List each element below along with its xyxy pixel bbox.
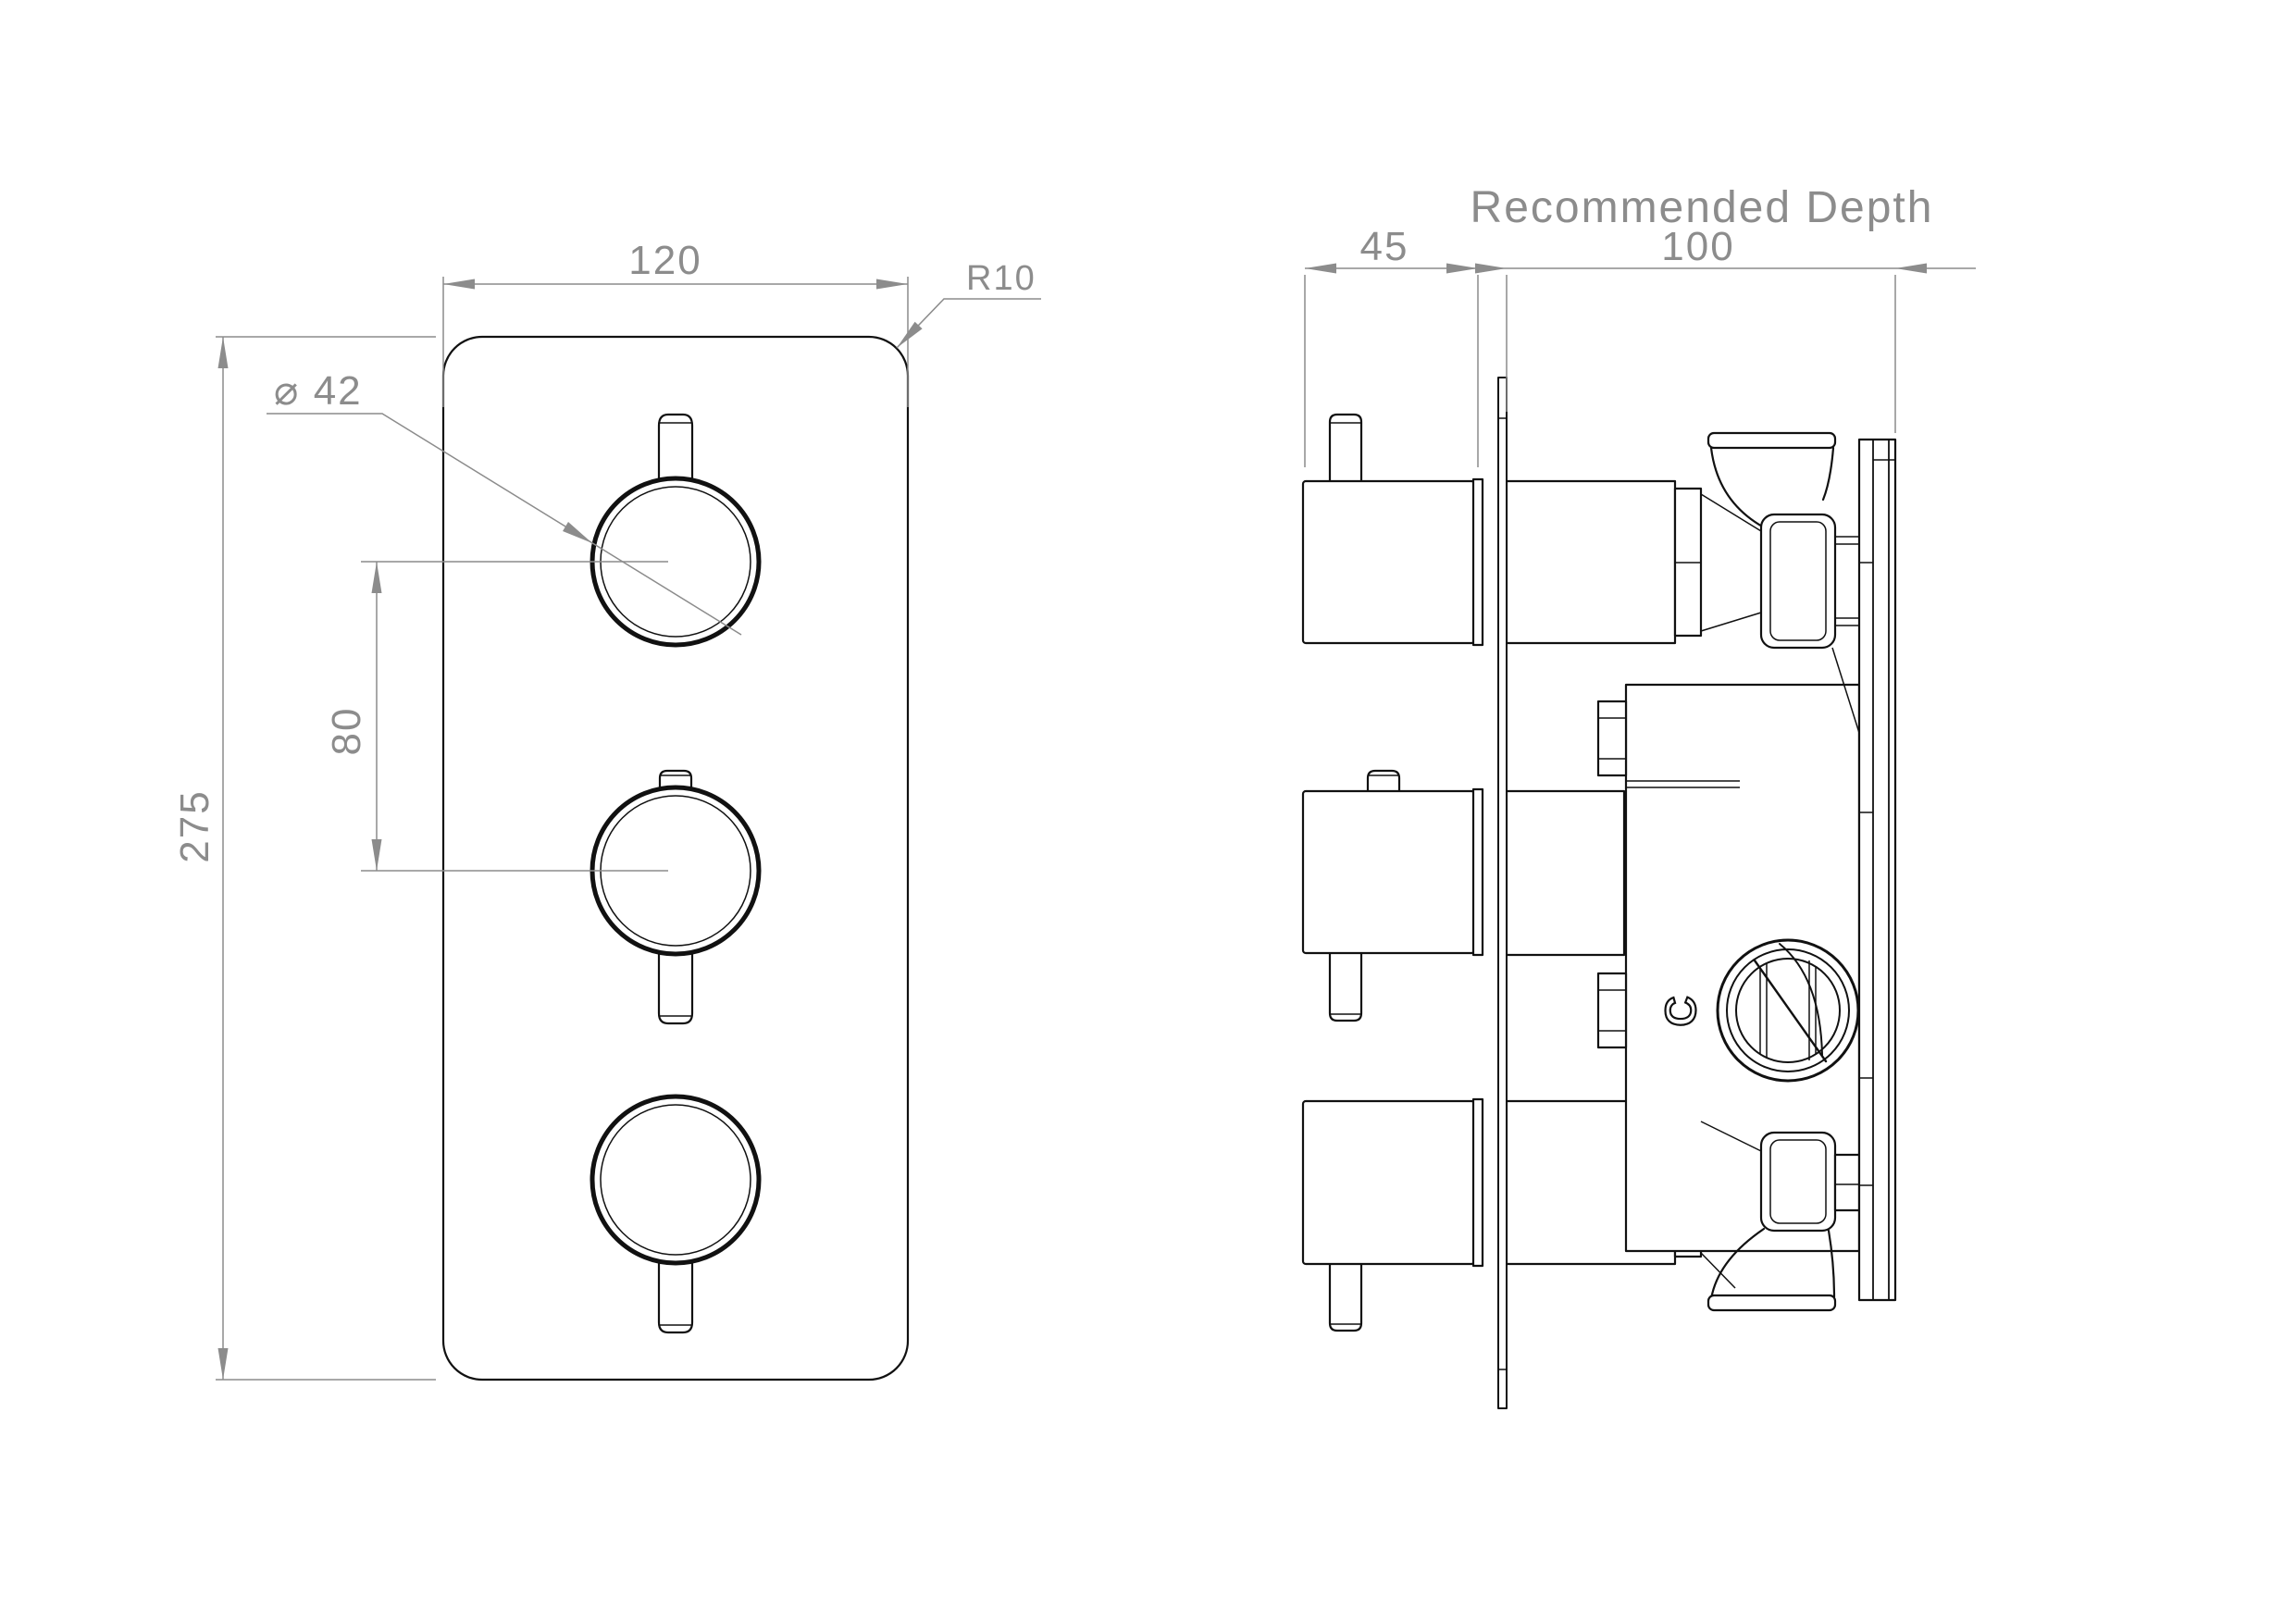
arrowhead-icon xyxy=(1305,264,1336,274)
dimension-depth: 45 100 Recommended Depth xyxy=(1305,183,1976,467)
arrowhead-icon xyxy=(876,279,908,290)
housing-top xyxy=(1507,481,1675,643)
arrowhead-icon xyxy=(218,1348,229,1380)
elbow-funnel-right xyxy=(1823,448,1833,500)
screw-outer-circle xyxy=(1718,940,1858,1081)
elbow-bottom-cap xyxy=(1708,1295,1835,1310)
knob-diameter-label: ⌀ 42 xyxy=(274,368,363,414)
mounting-plate-body xyxy=(1859,440,1895,1300)
spindle-down xyxy=(1330,949,1361,1021)
spindle-down xyxy=(1330,1260,1361,1331)
arrowhead-icon xyxy=(1475,264,1507,274)
recommended-depth-heading: Recommended Depth xyxy=(1471,183,1934,232)
fixing-bolt-upper xyxy=(1598,701,1626,775)
arrowhead-icon xyxy=(1895,264,1927,274)
valve-technical-drawing: C xyxy=(0,0,2296,1623)
arrowhead-icon xyxy=(1446,264,1478,274)
cartridge-flange xyxy=(1473,1099,1483,1266)
cartridge-top xyxy=(1303,415,1483,645)
elbow-funnel-left xyxy=(1711,448,1764,527)
front-view xyxy=(443,337,908,1380)
arrowhead-icon xyxy=(372,562,382,593)
elbow-socket xyxy=(1761,1133,1835,1231)
arrowhead-icon xyxy=(218,337,229,368)
dimension-corner-radius: R10 xyxy=(897,259,1041,348)
knob-spacing-label: 80 xyxy=(324,707,369,756)
elbow-transition xyxy=(1701,613,1761,631)
width-label: 120 xyxy=(628,238,701,283)
bolt-head xyxy=(1598,973,1626,1047)
cartridge-flange xyxy=(1473,479,1483,645)
fixing-bolt-lower xyxy=(1598,973,1626,1047)
diverter-screw xyxy=(1718,940,1858,1081)
elbow-socket xyxy=(1761,514,1835,648)
valve-marking-label: C xyxy=(1657,996,1705,1026)
elbow-top-cap xyxy=(1708,433,1835,448)
cartridge-middle xyxy=(1303,771,1483,1021)
side-view: C xyxy=(1303,378,1895,1408)
arrowhead-icon xyxy=(897,322,923,348)
arrowhead-icon xyxy=(372,839,382,871)
cartridge-bottom xyxy=(1303,1099,1483,1331)
cartridge-barrel xyxy=(1303,791,1474,953)
wall-slab xyxy=(1498,378,1507,1408)
cartridge-barrel xyxy=(1303,1101,1474,1264)
cartridge-barrel xyxy=(1303,481,1474,643)
height-label: 275 xyxy=(172,789,217,862)
technical-drawing-page: C xyxy=(0,0,2296,1623)
dimension-height: 275 xyxy=(172,337,436,1380)
elbow-plug xyxy=(1835,1155,1859,1210)
spindle-up xyxy=(1330,415,1361,485)
mounting-plate xyxy=(1859,440,1895,1300)
wall-section xyxy=(1498,378,1507,1408)
protrusion-label: 45 xyxy=(1360,224,1409,269)
cartridge-flange xyxy=(1473,789,1483,955)
arrowhead-icon xyxy=(443,279,475,290)
housing-middle xyxy=(1507,791,1624,955)
valve-body: C xyxy=(1507,433,1895,1310)
corner-radius-label: R10 xyxy=(966,259,1036,298)
bolt-head xyxy=(1598,701,1626,775)
knob-bottom-outer-ring xyxy=(592,1096,759,1263)
